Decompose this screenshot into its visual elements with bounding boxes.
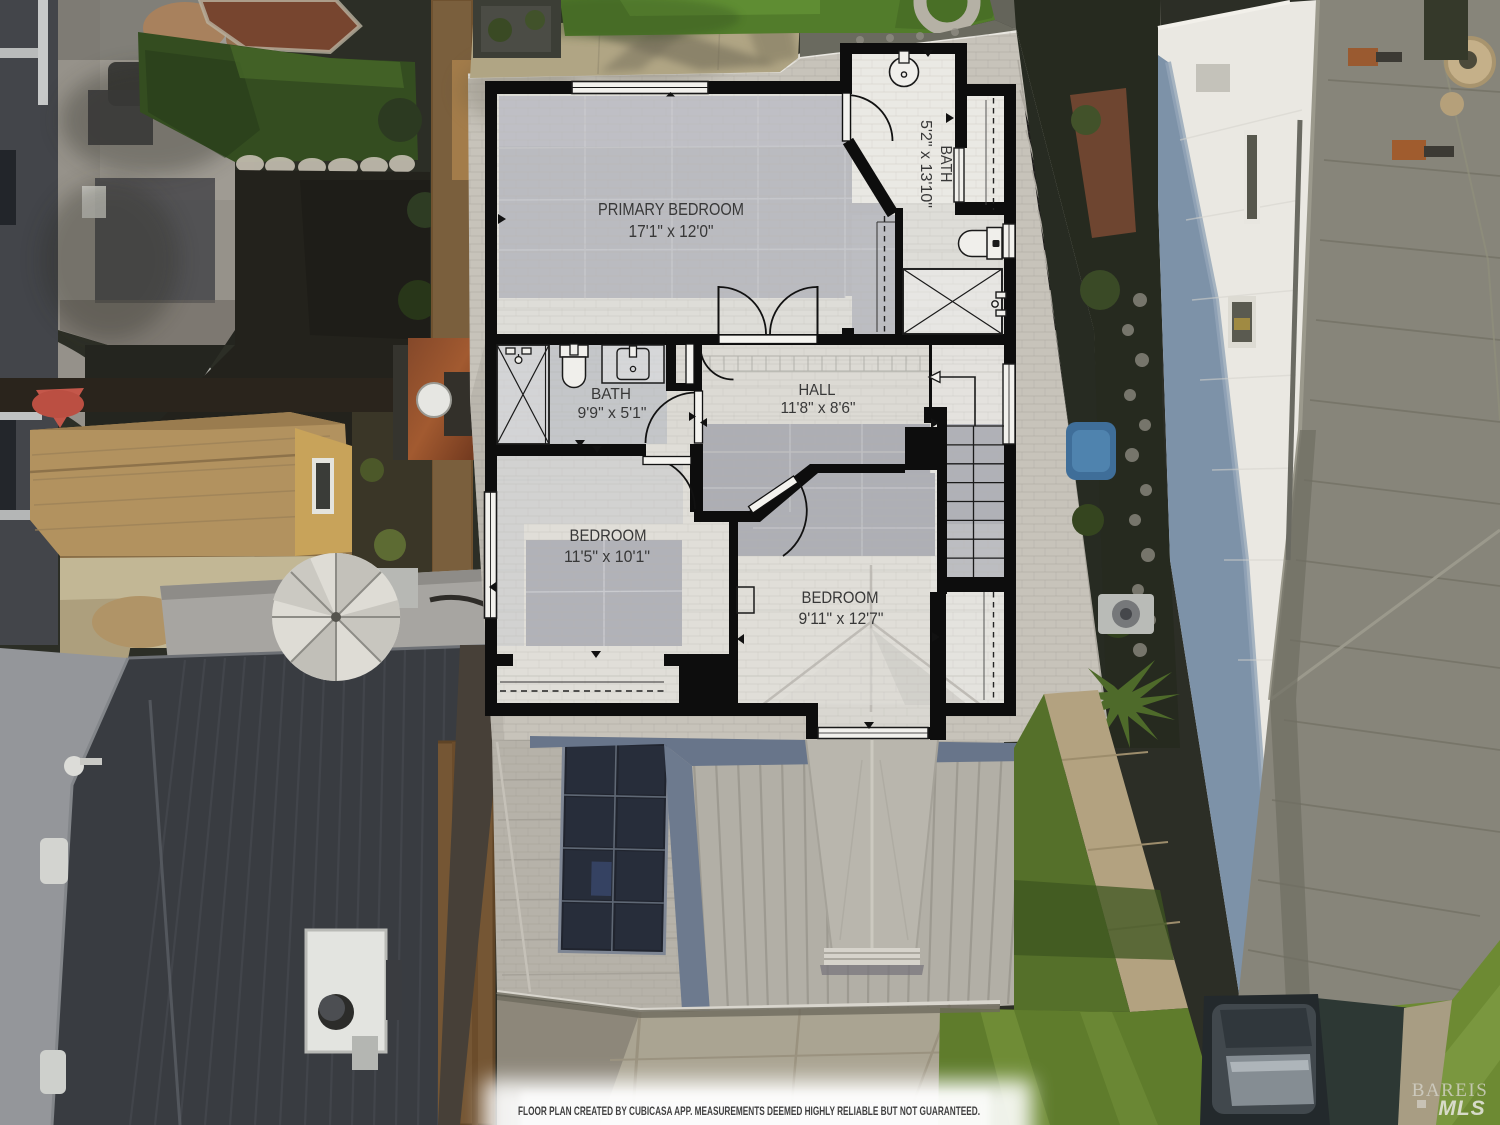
svg-text:17'1" x 12'0": 17'1" x 12'0" [629, 221, 714, 241]
svg-text:9'11" x 12'7": 9'11" x 12'7" [799, 610, 884, 628]
svg-text:BATH: BATH [591, 386, 631, 403]
svg-text:FLOOR PLAN CREATED BY CUBICASA: FLOOR PLAN CREATED BY CUBICASA APP. MEAS… [518, 1104, 980, 1118]
svg-text:PRIMARY BEDROOM: PRIMARY BEDROOM [598, 199, 744, 219]
svg-text:11'5" x 10'1": 11'5" x 10'1" [564, 548, 650, 566]
svg-text:BEDROOM: BEDROOM [570, 527, 647, 545]
svg-text:BATH: BATH [937, 146, 954, 183]
svg-text:5'2" x 13'10": 5'2" x 13'10" [917, 120, 934, 208]
svg-text:11'8" x 8'6": 11'8" x 8'6" [781, 400, 856, 417]
svg-text:MLS: MLS [1438, 1097, 1485, 1120]
svg-text:BEDROOM: BEDROOM [802, 589, 879, 607]
svg-text:9'9" x 5'1": 9'9" x 5'1" [578, 405, 647, 422]
svg-text:HALL: HALL [799, 382, 836, 399]
